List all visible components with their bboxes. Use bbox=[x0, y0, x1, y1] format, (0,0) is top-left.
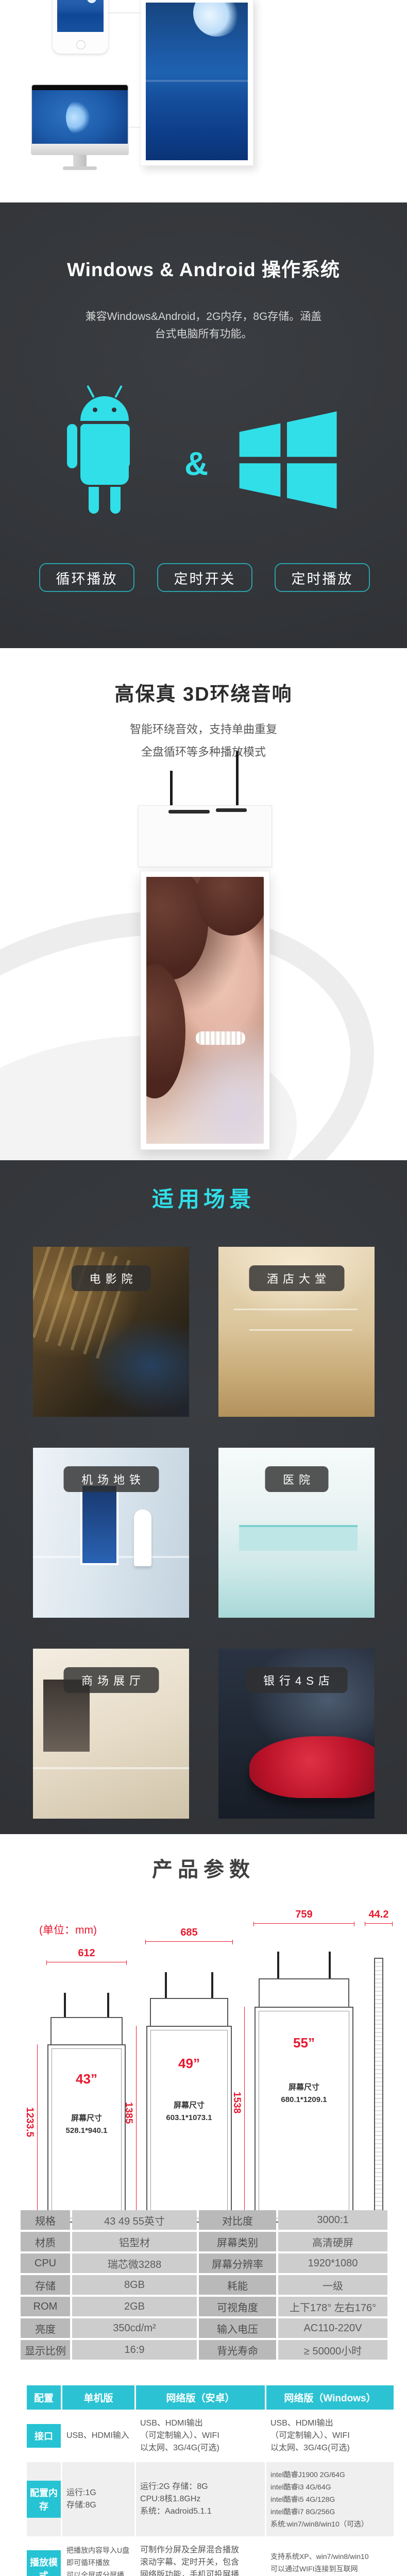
scene-tile-cinema: 电影院 bbox=[33, 1247, 189, 1417]
diagram-side: 44.2 bbox=[361, 1906, 397, 2226]
scene-label: 银行4S店 bbox=[245, 1667, 348, 1693]
spec-table: 规格43 49 55英寸对比度3000:1 材质铝型材屏幕类别高清硬屏 CPU瑞… bbox=[21, 2210, 387, 2360]
diagram-43: 612 43” 屏幕尺寸 528.1*940.1 1233.5 bbox=[46, 1906, 127, 2226]
scene-label: 机场地铁 bbox=[63, 1466, 159, 1492]
model-portrait-image bbox=[146, 877, 264, 1144]
product-detail-page: Windows & Android 操作系统 兼容Windows&Android… bbox=[0, 0, 407, 2576]
audio-title: 高保真 3D环绕音响 bbox=[0, 678, 407, 706]
hospital-counter bbox=[239, 1525, 358, 1551]
scene-label: 医院 bbox=[265, 1466, 328, 1492]
spec-value: 上下178° 左右176° bbox=[278, 2297, 387, 2316]
spec-label: 输入电压 bbox=[199, 2318, 276, 2338]
os-subtitle: 兼容Windows&Android，2G内存，8G存储。涵盖 台式电脑所有功能。 bbox=[0, 308, 407, 343]
device-top-panel bbox=[138, 805, 272, 867]
vertical-banner bbox=[80, 1484, 118, 1565]
spec-value: 3000:1 bbox=[278, 2210, 387, 2230]
spec-label: 规格 bbox=[21, 2210, 70, 2230]
size-label: 43” bbox=[46, 2071, 127, 2087]
spec-label: 亮度 bbox=[21, 2318, 70, 2338]
ampersand: & bbox=[184, 445, 208, 483]
spec-label: 存储 bbox=[21, 2275, 70, 2295]
spec-value: 一级 bbox=[278, 2275, 387, 2295]
feature-button-loop[interactable]: 循环播放 bbox=[39, 563, 134, 592]
audio-subtitle-line2: 全盘循环等多种播放模式 bbox=[0, 743, 407, 759]
config-cell: USB、HDMI输入 bbox=[62, 2411, 134, 2461]
signage-display-mockup bbox=[140, 0, 253, 166]
scene-tile-bank-4s-store: 银行4S店 bbox=[218, 1649, 375, 1819]
config-cell: 运行:1G 存储:8G bbox=[62, 2462, 134, 2536]
os-subtitle-line1: 兼容Windows&Android，2G内存，8G存储。涵盖 bbox=[0, 308, 407, 326]
spec-value: AC110-220V bbox=[278, 2318, 387, 2338]
scene-label: 商场展厅 bbox=[63, 1667, 159, 1693]
scene-label: 酒店大堂 bbox=[249, 1265, 344, 1291]
spec-value: 8GB bbox=[72, 2275, 197, 2295]
screen-caption: 屏幕尺寸 bbox=[145, 2099, 233, 2112]
config-table: 配置 单机版 网络版（安卓） 网络版（Windows） 接口 USB、HDMI输… bbox=[27, 2385, 394, 2576]
config-header: 网络版（安卓） bbox=[136, 2385, 265, 2410]
config-row-label: 接口 bbox=[27, 2424, 61, 2448]
config-cell: USB、HDMI输出 （可定制输入）、WIFI 以太网、3G/4G(可选) bbox=[266, 2411, 394, 2461]
os-section: Windows & Android 操作系统 兼容Windows&Android… bbox=[0, 202, 407, 648]
signage-display-image bbox=[146, 3, 248, 160]
hero-section bbox=[0, 0, 407, 202]
spec-label: 背光寿命 bbox=[199, 2340, 276, 2360]
spec-label: 可视角度 bbox=[199, 2297, 276, 2316]
dim-width: 685 bbox=[145, 1927, 233, 1939]
spec-value: 2GB bbox=[72, 2297, 197, 2316]
scene-tile-airport-metro: 机场地铁 bbox=[33, 1448, 189, 1618]
dim-width: 759 bbox=[253, 1909, 354, 1921]
dim-height: 1385 bbox=[123, 2102, 134, 2124]
imac-screen bbox=[31, 84, 129, 145]
config-cell: intel酷睿J1900 2G/64G intel酷睿i3 4G/64G int… bbox=[266, 2462, 394, 2536]
os-title: Windows & Android 操作系统 bbox=[0, 254, 407, 282]
spec-label: 对比度 bbox=[199, 2210, 276, 2230]
screen-size: 680.1*1209.1 bbox=[253, 2094, 354, 2106]
spec-value: 瑞芯微3288 bbox=[72, 2253, 197, 2273]
android-icon bbox=[66, 377, 143, 547]
config-cell: 运行:2G 存储：8G CPU:8核1.8GHz 系统：Aadroid5.1.1 bbox=[136, 2462, 265, 2536]
spec-label: 耗能 bbox=[199, 2275, 276, 2295]
params-title: 产品参数 bbox=[0, 1853, 407, 1883]
config-cell: 把播放内容导入U盘 即可循环播放 可以全屏或分屏播放 bbox=[62, 2538, 134, 2576]
spec-value: 铝型材 bbox=[72, 2232, 197, 2251]
spec-value: ≥ 50000小时 bbox=[278, 2340, 387, 2360]
spec-label: CPU bbox=[21, 2253, 70, 2273]
red-car bbox=[249, 1736, 375, 1798]
feature-button-timer-switch[interactable]: 定时开关 bbox=[157, 563, 252, 592]
spec-label: ROM bbox=[21, 2297, 70, 2316]
phone-mockup bbox=[53, 0, 108, 54]
screen-caption: 屏幕尺寸 bbox=[253, 2081, 354, 2094]
spec-label: 显示比例 bbox=[21, 2340, 70, 2360]
spec-value: 43 49 55英寸 bbox=[72, 2210, 197, 2230]
phone-screen bbox=[57, 0, 104, 32]
scene-tile-mall-showroom: 商场展厅 bbox=[33, 1649, 189, 1819]
diagram-55: 759 55” 屏幕尺寸 680.1*1209.1 1538 bbox=[253, 1906, 354, 2226]
scene-label: 电影院 bbox=[71, 1265, 150, 1291]
windows-icon bbox=[233, 372, 341, 548]
config-row-label: 播放模式 bbox=[27, 2550, 61, 2576]
walking-person bbox=[134, 1510, 151, 1566]
config-cell: 可制作分屏及全屏混合播放 滚动字幕、定时开关，包含 网络版功能，手机可投屏播 放… bbox=[136, 2538, 265, 2576]
audio-section: 高保真 3D环绕音响 智能环绕音效，支持单曲重复 全盘循环等多种播放模式 bbox=[0, 648, 407, 1160]
dim-height: 1233.5 bbox=[24, 2107, 35, 2137]
config-row-label: 配置内存 bbox=[27, 2481, 61, 2518]
config-header: 网络版（Windows） bbox=[266, 2385, 394, 2410]
spec-value: 1920*1080 bbox=[278, 2253, 387, 2273]
dim-width: 612 bbox=[46, 1947, 127, 1959]
scenes-section: 适用场景 电影院 酒店大堂 机场地铁 医院 商场展厅 银行4S店 bbox=[0, 1160, 407, 1834]
screen-size: 603.1*1073.1 bbox=[145, 2112, 233, 2124]
spec-label: 屏幕类别 bbox=[199, 2232, 276, 2251]
scene-tile-hospital: 医院 bbox=[218, 1448, 375, 1618]
spec-value: 350cd/m² bbox=[72, 2318, 197, 2338]
screen-size: 528.1*940.1 bbox=[46, 2125, 127, 2137]
size-label: 55” bbox=[253, 2035, 354, 2051]
config-header: 配置 bbox=[27, 2385, 61, 2410]
lace-choker bbox=[196, 1031, 245, 1045]
spec-value: 高清硬屏 bbox=[278, 2232, 387, 2251]
os-subtitle-line2: 台式电脑所有功能。 bbox=[0, 326, 407, 343]
feature-button-timed-play[interactable]: 定时播放 bbox=[275, 563, 370, 592]
spec-label: 屏幕分辨率 bbox=[199, 2253, 276, 2273]
scenes-title: 适用场景 bbox=[0, 1182, 407, 1213]
dim-height: 1538 bbox=[231, 2092, 242, 2113]
config-cell: USB、HDMI输出 （可定制输入）、WIFI 以太网、3G/4G(可选) bbox=[136, 2411, 265, 2461]
spec-value: 16:9 bbox=[72, 2340, 197, 2360]
screen-caption: 屏幕尺寸 bbox=[46, 2112, 127, 2125]
audio-subtitle-line1: 智能环绕音效，支持单曲重复 bbox=[0, 720, 407, 737]
scene-tile-hotel-lobby: 酒店大堂 bbox=[218, 1247, 375, 1417]
size-label: 49” bbox=[145, 2056, 233, 2072]
config-header: 单机版 bbox=[62, 2385, 134, 2410]
phone-home-button bbox=[76, 40, 86, 49]
diagram-49: 685 49” 屏幕尺寸 603.1*1073.1 1385 bbox=[145, 1906, 233, 2226]
imac-mockup bbox=[31, 84, 129, 170]
params-section: 产品参数 (单位：mm) 612 43” 屏幕尺寸 528.1*940.1 12… bbox=[0, 1834, 407, 2576]
device-screen bbox=[140, 871, 270, 1150]
dim-thickness: 44.2 bbox=[361, 1909, 397, 1921]
spec-label: 材质 bbox=[21, 2232, 70, 2251]
config-cell: 支持系统XP、win7/win8/win10 可以通过WIFI连接到互联网 通过… bbox=[266, 2538, 394, 2576]
